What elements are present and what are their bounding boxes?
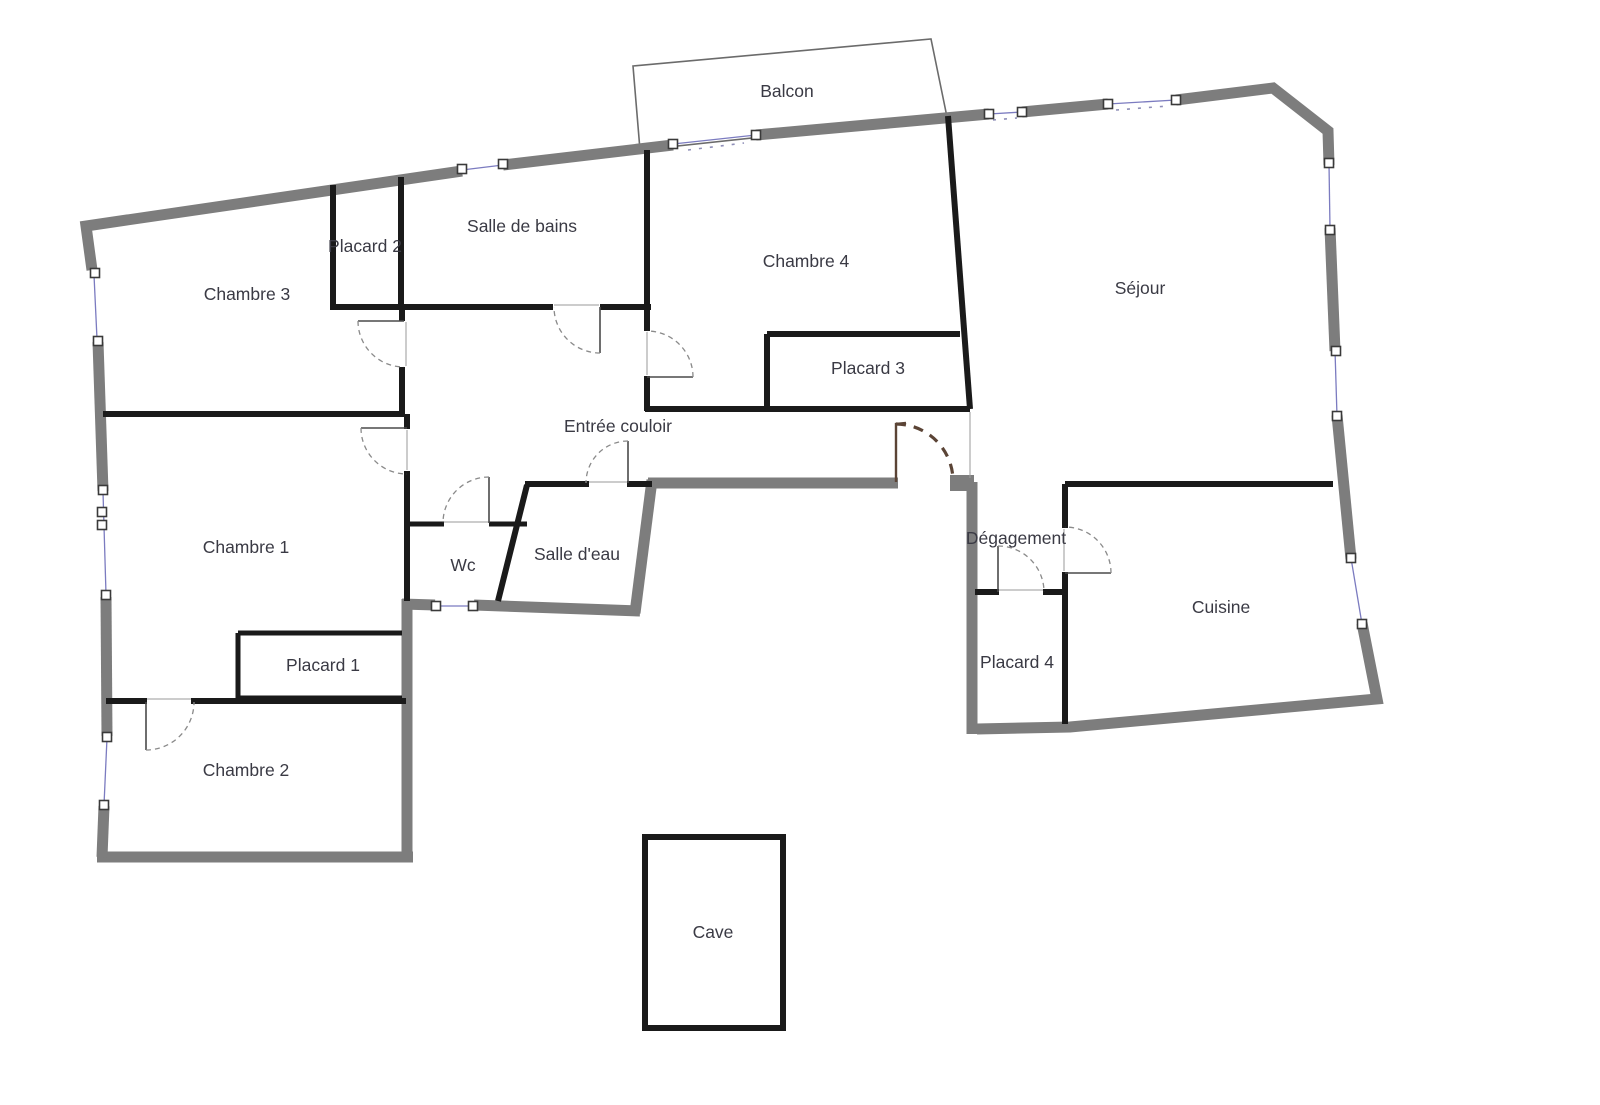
entry-door-swing-arc xyxy=(896,424,953,481)
door-swing-arc xyxy=(146,702,194,750)
room-label-salle-deau: Salle d'eau xyxy=(534,544,620,564)
window-marker xyxy=(1347,554,1356,563)
door-cuisine xyxy=(1065,527,1111,573)
exterior-wall-right-bottom xyxy=(977,623,1377,729)
room-label-cave: Cave xyxy=(693,922,734,942)
window-dash-marks xyxy=(1116,106,1168,110)
door-entree-principale xyxy=(896,423,953,482)
exterior-wall-top-left xyxy=(86,171,462,270)
room-label-chambre-4: Chambre 4 xyxy=(763,251,850,271)
window-line xyxy=(1329,164,1330,229)
window-marker xyxy=(1326,226,1335,235)
window-line xyxy=(462,165,503,170)
room-label-chambre-3: Chambre 3 xyxy=(204,284,291,304)
window-marker xyxy=(103,733,112,742)
exterior-wall-salle-deau-east xyxy=(635,480,652,613)
wall-chambre4-east-slanted xyxy=(948,116,970,409)
room-label-degagement: Dégagement xyxy=(966,528,1066,548)
room-label-placard-2: Placard 2 xyxy=(328,236,402,256)
door-chambre-2 xyxy=(146,702,194,750)
room-label-chambre-2: Chambre 2 xyxy=(203,760,290,780)
door-swing-arc xyxy=(1065,527,1111,573)
window-marker xyxy=(94,337,103,346)
exterior-wall-right xyxy=(1330,228,1335,351)
floor-plan-page: Balcon Chambre 3 Placard 2 Salle de bain… xyxy=(0,0,1600,1105)
door-chambre-1 xyxy=(361,428,407,474)
door-placard-4 xyxy=(998,546,1044,592)
door-sills xyxy=(147,305,1064,699)
window-line xyxy=(1335,350,1337,416)
exterior-wall-left xyxy=(102,806,104,857)
door-swing-arc xyxy=(647,331,693,377)
room-label-sejour: Séjour xyxy=(1115,278,1166,298)
window-marker xyxy=(1332,347,1341,356)
room-label-placard-4: Placard 4 xyxy=(980,652,1054,672)
door-swing-arc xyxy=(554,307,600,353)
room-label-cuisine: Cuisine xyxy=(1192,597,1250,617)
window-marker xyxy=(752,131,761,140)
door-salle-deau xyxy=(586,441,628,483)
window-marker xyxy=(669,140,678,149)
room-label-salle-de-bains: Salle de bains xyxy=(467,216,577,236)
room-label-chambre-1: Chambre 1 xyxy=(203,537,290,557)
entry-door-leaf xyxy=(896,423,906,482)
door-chambre-3 xyxy=(358,321,404,367)
door-swing-arc xyxy=(358,321,404,367)
window-marker xyxy=(432,602,441,611)
window-marker xyxy=(469,602,478,611)
door-chambre-4 xyxy=(647,331,693,377)
exterior-wall-right xyxy=(1337,415,1351,559)
window-marker xyxy=(1333,412,1342,421)
room-label-wc: Wc xyxy=(450,555,476,575)
window-marker xyxy=(100,801,109,810)
window-marker xyxy=(91,269,100,278)
window-marker xyxy=(1172,96,1181,105)
room-labels: Balcon Chambre 3 Placard 2 Salle de bain… xyxy=(203,81,1250,942)
window-marker xyxy=(1325,159,1334,168)
door-swing-arc xyxy=(361,428,407,474)
door-swing-arc xyxy=(998,546,1044,592)
room-label-placard-3: Placard 3 xyxy=(831,358,905,378)
window-line xyxy=(1108,100,1176,104)
window-dash-marks xyxy=(993,118,1017,120)
door-salle-de-bains xyxy=(554,307,600,353)
door-swing-arc xyxy=(443,477,489,523)
floor-plan-canvas: Balcon Chambre 3 Placard 2 Salle de bain… xyxy=(0,0,1600,1105)
exterior-walls xyxy=(86,88,1377,858)
window-line xyxy=(1351,558,1362,624)
window-line xyxy=(94,275,97,339)
window-marker xyxy=(985,110,994,119)
exterior-wall-left xyxy=(106,597,107,736)
window-marker xyxy=(458,165,467,174)
window-line xyxy=(104,738,107,805)
interior-walls xyxy=(103,116,1333,1028)
window-marker xyxy=(1104,100,1113,109)
exterior-wall-salle-deau-south xyxy=(474,605,640,611)
window-marker xyxy=(98,521,107,530)
window-marker xyxy=(102,591,111,600)
exterior-wall-left xyxy=(98,342,103,491)
window-marker xyxy=(499,160,508,169)
wall-salle-deau-west xyxy=(498,485,527,601)
window-marker xyxy=(1358,620,1367,629)
room-label-balcon: Balcon xyxy=(760,81,814,101)
door-wc xyxy=(443,477,489,523)
exterior-wall-top-right-corner xyxy=(1176,88,1329,165)
window-marker xyxy=(1018,108,1027,117)
room-label-entree-couloir: Entrée couloir xyxy=(564,416,672,436)
window-marker xyxy=(99,486,108,495)
room-label-placard-1: Placard 1 xyxy=(286,655,360,675)
exterior-wall-top xyxy=(1022,104,1108,112)
door-swing-arc xyxy=(586,441,628,483)
window-marker xyxy=(98,508,107,517)
